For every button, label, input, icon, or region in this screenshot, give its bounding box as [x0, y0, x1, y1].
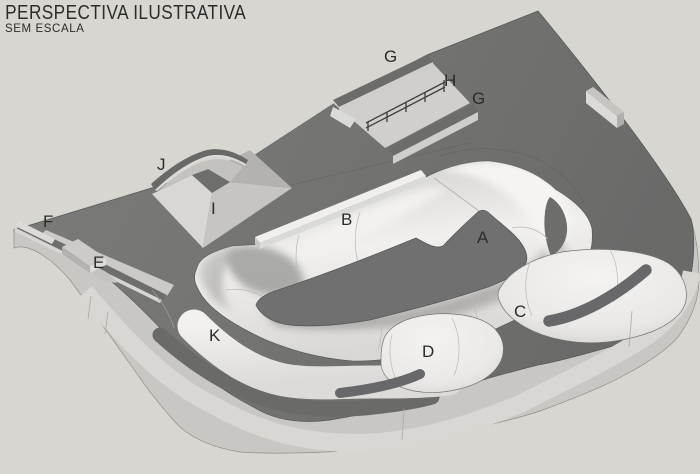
- svg-text:PERSPECTIVA ILUSTRATIVA: PERSPECTIVA ILUSTRATIVA: [5, 1, 246, 24]
- svg-text:E: E: [93, 253, 104, 272]
- svg-text:J: J: [157, 155, 166, 174]
- svg-text:C: C: [514, 302, 526, 321]
- svg-text:H: H: [444, 71, 456, 90]
- svg-text:F: F: [43, 212, 53, 231]
- svg-text:K: K: [209, 326, 221, 345]
- svg-text:B: B: [341, 210, 352, 229]
- svg-text:SEM ESCALA: SEM ESCALA: [5, 23, 85, 35]
- svg-text:G: G: [472, 89, 485, 108]
- svg-text:G: G: [384, 47, 397, 66]
- svg-text:A: A: [477, 228, 489, 247]
- svg-text:I: I: [211, 199, 216, 218]
- svg-text:D: D: [422, 342, 434, 361]
